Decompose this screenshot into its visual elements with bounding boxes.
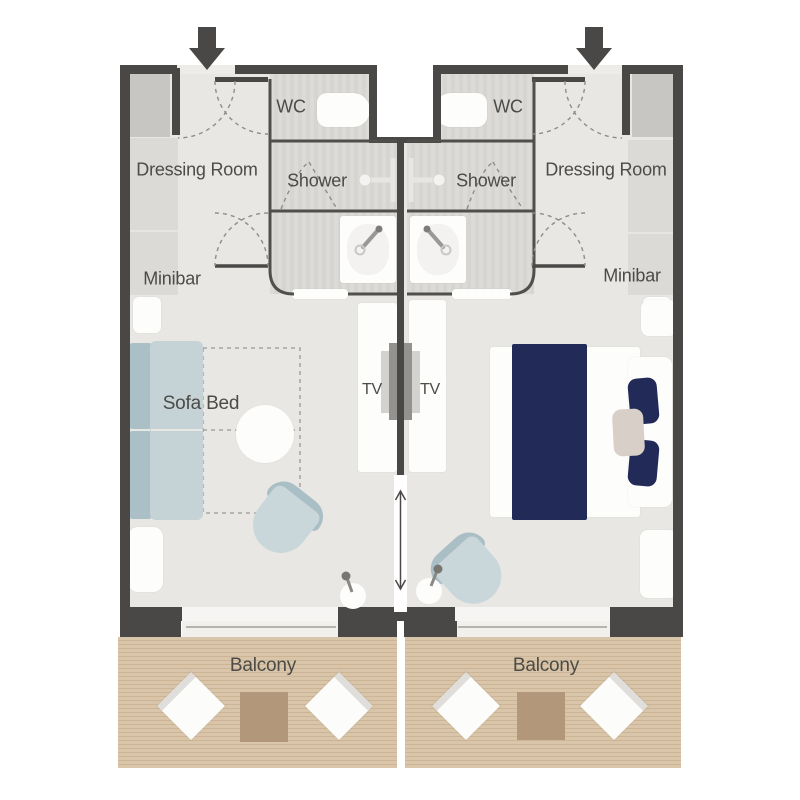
left-shower-label: Shower [287, 171, 347, 192]
left-tv-label: TV [362, 381, 382, 399]
wall-bottom-1 [120, 607, 182, 621]
nightstand-top [641, 300, 677, 336]
left-balcony-door-opening [182, 607, 338, 621]
right-dressing-room-label: Dressing Room [545, 160, 666, 181]
bed-runner [512, 344, 587, 520]
wall-bottom-3 [404, 607, 455, 621]
round-coffee-table [236, 405, 294, 463]
right-balcony-label: Balcony [513, 655, 579, 677]
right-tv-screen [404, 343, 412, 420]
wall-recess-right [433, 65, 441, 143]
wall-corner-block-4 [610, 621, 683, 637]
wall-recess-left [369, 65, 377, 143]
right-balcony-threshold [455, 621, 610, 637]
wall-top-right [433, 65, 568, 74]
arrow-head [576, 48, 612, 70]
right-minibar-label: Minibar [603, 266, 661, 287]
arrow-stem [585, 27, 603, 49]
wall-bottom-2 [338, 607, 397, 621]
wall-entry-stub-right [532, 77, 585, 82]
left-minibar-label: Minibar [143, 269, 201, 290]
right-balcony-door-opening [455, 607, 610, 621]
left-tv-mount [381, 351, 389, 413]
corridor-recess [377, 65, 433, 143]
wall-bottom-4 [610, 607, 683, 621]
left-entry-closet [130, 74, 170, 137]
wall-corner-block-3 [404, 621, 457, 637]
left-end-table [128, 527, 163, 592]
right-tv-mount [412, 351, 420, 413]
wall-divider [397, 143, 404, 476]
nightstand-bottom [640, 530, 677, 598]
left-toilet [317, 93, 370, 127]
left-dressing-room-label: Dressing Room [136, 160, 257, 181]
sofa-back-cushion [127, 431, 152, 519]
right-entry-closet [632, 74, 673, 137]
wall-closet-stub-left [172, 68, 180, 135]
left-tv-screen [389, 343, 397, 420]
wall-divider-stub [397, 611, 404, 621]
right-wardrobe [628, 140, 673, 234]
left-side-cabinet [133, 297, 161, 333]
wall-corner-block-1 [120, 621, 181, 637]
left-balcony-threshold [182, 621, 338, 637]
entrance-arrow-icon [576, 27, 612, 70]
wall-closet-stub-right [622, 68, 630, 135]
floor-plan: Dressing Room Dressing Room WC WC Shower… [0, 0, 800, 800]
wall-top-left-2 [235, 65, 377, 74]
wall-corner-block-2 [338, 621, 397, 637]
right-balcony-table [517, 692, 565, 740]
sofa-bed-label: Sofa Bed [163, 393, 240, 415]
left-balcony-table [240, 692, 288, 742]
left-bathroom-door [292, 289, 348, 299]
right-bathroom-door [452, 289, 512, 299]
sofa-cushion-gap [151, 429, 202, 431]
right-toilet [434, 93, 487, 127]
left-wardrobe [128, 138, 178, 232]
wall-left-exterior [120, 65, 130, 621]
left-wc-label: WC [276, 97, 306, 118]
bed-tray [612, 408, 645, 457]
wall-recess-bottom [369, 137, 441, 143]
right-sink-basin [417, 224, 459, 275]
right-shower-label: Shower [456, 171, 516, 192]
arrow-head [189, 48, 225, 70]
entrance-arrow-icon [189, 27, 225, 70]
wall-entry-stub-left [215, 77, 268, 82]
wall-right-exterior [673, 65, 683, 621]
right-wc-label: WC [493, 97, 523, 118]
right-tv-label: TV [420, 381, 440, 399]
left-sink-basin [347, 224, 389, 275]
left-balcony-label: Balcony [230, 655, 296, 677]
arrow-stem [198, 27, 216, 49]
sofa-back-cushion [127, 343, 152, 429]
